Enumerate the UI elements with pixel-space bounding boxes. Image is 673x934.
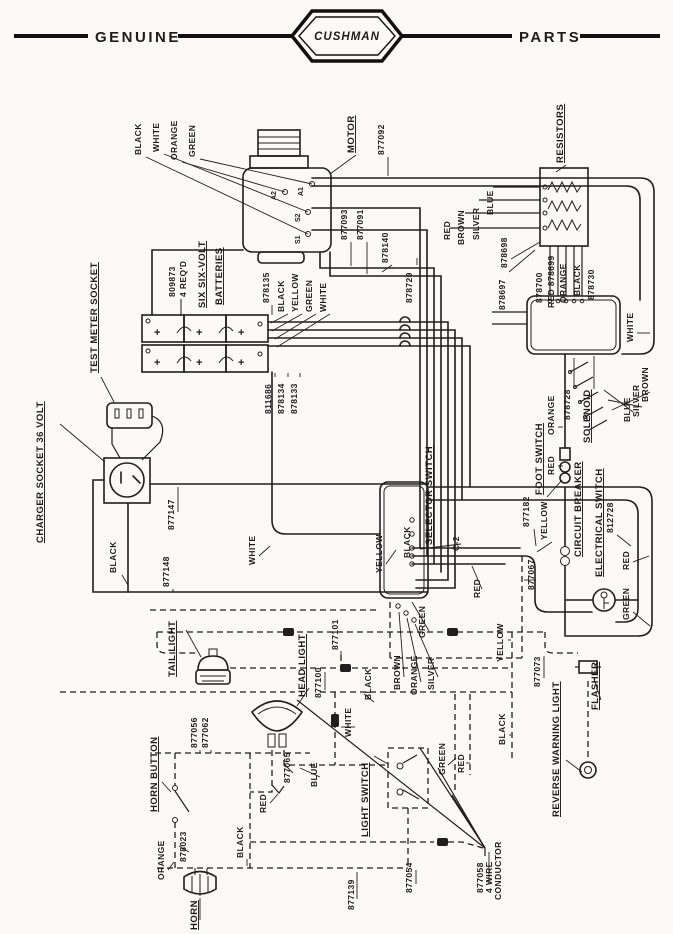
wire-segment: [112, 428, 120, 458]
wire-segment: [173, 786, 178, 791]
header-band: GENUINE PARTS CUSHMAN: [14, 11, 660, 61]
wire-segment: [561, 547, 570, 556]
label-selector-yellow: YELLOW: [374, 534, 384, 573]
wire-segment: [258, 322, 262, 326]
title-foot-switch: FOOT SWITCH: [534, 423, 545, 495]
title-selector-switch: SELECTOR SWITCH: [424, 446, 435, 545]
label-selector-orange: ORANGE: [409, 655, 419, 695]
label-conductor-2: CONDUCTOR: [493, 841, 503, 900]
label-part-877148: 877148: [161, 556, 171, 587]
label-part-811686: 811686: [263, 384, 273, 414]
label-part-877139: 877139: [346, 879, 356, 910]
head-light: [252, 701, 302, 747]
wire-segment: [312, 178, 654, 354]
battery-plus: +: [196, 357, 202, 369]
wire-segment: [198, 656, 228, 670]
wire-segment: [560, 462, 570, 472]
wire-segment: [545, 632, 578, 653]
title-charger-socket: CHARGER SOCKET 36 VOLT: [35, 401, 46, 543]
wire-segment: [297, 700, 485, 848]
wire-segment: [209, 649, 217, 656]
horn-button-switch: [173, 786, 190, 823]
circuit-breaker-coil: [561, 547, 570, 566]
wire-segment: [226, 315, 268, 342]
battery-bank: [142, 299, 268, 372]
label-motor-white: WHITE: [151, 123, 161, 152]
resistor-zigzag: [548, 220, 581, 230]
label-horn-orange: ORANGE: [156, 840, 166, 880]
label-lswitch-red: RED: [456, 754, 466, 773]
title-solenoid: SOLENOID: [582, 389, 593, 443]
label-part-878698: 878698: [499, 237, 509, 268]
wire-segment: [531, 300, 616, 350]
cushman-badge: CUSHMAN: [292, 11, 402, 61]
label-eswitch-green: GREEN: [621, 588, 631, 620]
wire-segment: [570, 362, 588, 372]
battery-plus: +: [196, 327, 202, 339]
diagram-canvas: GENUINE PARTS CUSHMAN: [0, 0, 673, 934]
wire-segment: [226, 345, 268, 372]
motor: [243, 130, 331, 263]
wire-segment: [617, 535, 631, 546]
wire-segment: [397, 789, 403, 795]
wire-segment: [560, 473, 570, 483]
label-terminal-s2: S2: [295, 213, 302, 222]
label-eswitch-red: RED: [621, 551, 631, 570]
charger-socket: [104, 458, 150, 503]
wire-segment: [601, 592, 607, 598]
wiring-diagram-page: GENUINE PARTS CUSHMAN: [0, 0, 673, 934]
wire-segment: [386, 550, 396, 564]
label-part-878730: 878730: [586, 269, 596, 300]
wire-segment: [196, 670, 230, 684]
label-part-812728: 812728: [605, 502, 615, 533]
header-parts: PARTS: [519, 29, 581, 46]
wire-segment: [146, 349, 150, 353]
wire-segment: [60, 424, 105, 462]
title-horn: HORN: [189, 900, 200, 930]
wire-segment: [540, 168, 588, 246]
label-battery-white: WHITE: [318, 283, 328, 312]
wire-segment: [331, 714, 339, 727]
wire-segment: [560, 448, 570, 460]
label-part-877062: 877062: [200, 717, 210, 748]
label-selector-silver: SILVER: [426, 658, 436, 690]
wire-segment: [284, 750, 388, 765]
wire-segment: [110, 463, 144, 497]
wire-segment: [547, 480, 562, 497]
wire-segment: [412, 618, 416, 622]
label-part-878023: 878023: [178, 831, 188, 862]
wire-segment: [258, 252, 304, 263]
label-lswitch-green: GREEN: [437, 743, 447, 775]
wire-segment: [534, 529, 536, 546]
wire-segment: [543, 198, 547, 202]
label-selector-red: RED: [472, 579, 482, 598]
wire-segment: [452, 795, 485, 848]
wire-segment: [447, 628, 458, 636]
label-part-878728: 878728: [562, 389, 572, 420]
wire-segment: [122, 575, 128, 585]
wire-segment: [250, 750, 272, 792]
label-selector-black: BLACK: [402, 526, 412, 558]
foot-switch: [560, 448, 570, 483]
label-part-878729: 878729: [404, 272, 414, 303]
wire-segment: [437, 838, 448, 846]
label-part-877065: 877065: [282, 752, 292, 783]
label-selector-green: GREEN: [417, 606, 427, 638]
tail-light: [196, 649, 230, 684]
wire-segment: [268, 734, 275, 747]
wire-segment: [580, 762, 596, 778]
wire-segment: [250, 156, 308, 168]
label-battery-qty: 4 REQ'D: [178, 261, 188, 297]
label-part-877092: 877092: [376, 124, 386, 155]
wire-segment: [312, 208, 420, 548]
wire-segment: [259, 546, 270, 556]
reverse-warning-lamp: [580, 762, 596, 778]
title-reverse-warning-light: REVERSE WARNING LIGHT: [551, 681, 562, 817]
wire-segment: [340, 664, 351, 672]
solenoid: [527, 296, 620, 430]
title-head-light: HEAD LIGHT: [297, 634, 308, 697]
label-foot-yellow: YELLOW: [539, 501, 549, 540]
wire-segment: [448, 758, 456, 765]
wire-splice: [272, 785, 284, 793]
wire-segment: [162, 782, 171, 792]
wire-segment: [101, 377, 114, 402]
label-harness-yellow: YELLOW: [495, 623, 505, 662]
wire-segment: [107, 403, 152, 428]
label-terminal-c2: C-2: [451, 536, 461, 551]
label-part-878135: 878135: [261, 272, 271, 303]
label-headlight-blue: BLUE: [309, 762, 319, 787]
wire-segment: [258, 707, 296, 714]
label-part-877182: 877182: [521, 496, 531, 527]
label-part-877073: 877073: [532, 656, 542, 687]
title-circuit-breaker: CIRCUIT BREAKER: [573, 461, 584, 557]
label-battery-yellow: YELLOW: [290, 273, 300, 312]
wire-segment: [133, 476, 140, 483]
label-part-878140: 878140: [380, 232, 390, 263]
label-part-878697: 878697: [497, 279, 507, 310]
wire-segment: [509, 250, 535, 272]
label-part-877067: 877067: [526, 559, 536, 590]
wire-segment: [279, 734, 286, 747]
wire-segment: [320, 252, 434, 564]
wire-segment: [184, 345, 226, 372]
wire-segment: [410, 518, 414, 522]
battery-plus: +: [238, 357, 244, 369]
label-resistor-black: BLACK: [572, 264, 582, 296]
title-motor: MOTOR: [346, 115, 357, 153]
wire-segment: [258, 352, 262, 356]
label-resistor-red: RED: [442, 221, 452, 240]
label-charger-black: BLACK: [108, 541, 118, 573]
resistor-zigzag: [548, 182, 581, 192]
title-flasher: FLASHER: [590, 662, 601, 710]
title-test-meter-socket: TEST METER SOCKET: [89, 262, 100, 373]
label-foot-red: RED: [546, 456, 556, 475]
label-part-877147: 877147: [166, 499, 176, 530]
label-harness-black: BLACK: [497, 713, 507, 745]
wire-segment: [543, 211, 547, 215]
label-selector-brown: BROWN: [392, 655, 402, 690]
wire-segment: [252, 701, 302, 731]
label-headlight-white: WHITE: [343, 708, 353, 737]
wire-segment: [330, 155, 356, 174]
label-part-877091: 877091: [355, 209, 365, 240]
wire-segment: [168, 862, 174, 870]
label-resistor-brown: BROWN: [456, 210, 466, 245]
wire-segment: [268, 346, 470, 487]
wire-segment: [585, 767, 592, 774]
wire-segment: [397, 763, 403, 769]
wire-segment: [200, 159, 312, 184]
label-harness-white: WHITE: [247, 536, 257, 565]
label-terminal-a2: A2: [271, 191, 278, 200]
label-motor-orange: ORANGE: [169, 120, 179, 160]
battery-plus: +: [154, 327, 160, 339]
motor-body: [243, 168, 331, 252]
label-motor-green: GREEN: [187, 125, 197, 157]
label-solenoid-brown: BROWN: [640, 367, 650, 402]
title-electrical-switch: ELECTRICAL SWITCH: [594, 468, 605, 577]
title-resistors: RESISTORS: [555, 104, 566, 163]
label-part-878134: 878134: [276, 383, 286, 414]
label-headlight-black: BLACK: [363, 668, 373, 700]
wire-segment: [543, 226, 547, 230]
title-light-switch: LIGHT SWITCH: [360, 762, 371, 837]
wire-segment: [404, 611, 408, 615]
label-part-877101: 877101: [330, 619, 340, 650]
wire-segment: [175, 791, 189, 812]
label-terminal-a1: A1: [298, 187, 305, 196]
wire-segment: [561, 557, 570, 566]
label-resistor-blue: BLUE: [485, 190, 495, 215]
wire-segment: [537, 542, 552, 552]
wire-segment: [270, 794, 278, 803]
wire-segment: [272, 785, 284, 793]
label-motor-black: BLACK: [133, 123, 143, 155]
wire-segment: [566, 760, 582, 772]
label-part-878699: RED 878699: [546, 255, 556, 308]
wire-segment: [575, 377, 593, 387]
wire-segment: [139, 409, 143, 418]
battery-plus: +: [238, 327, 244, 339]
label-horn-black: BLACK: [235, 826, 245, 858]
label-part-877054: 877054: [404, 862, 414, 893]
label-part-877100: 877100: [313, 667, 323, 698]
label-part-878133: 878133: [289, 383, 299, 414]
wire-segment: [173, 818, 178, 823]
resistor-zigzag: [548, 201, 581, 211]
wire-segment: [127, 409, 131, 418]
wire-segment: [268, 322, 448, 580]
wire-segment: [146, 319, 150, 323]
title-horn-button: HORN BUTTON: [149, 736, 160, 812]
label-part-878700: 878700: [534, 272, 544, 303]
wire-segment: [527, 296, 620, 354]
label-solenoid-white: WHITE: [625, 313, 635, 342]
wire-segment: [633, 612, 650, 626]
horn: [184, 868, 216, 896]
title-tail-light: TAIL LIGHT: [167, 621, 178, 677]
test-meter-socket: [107, 403, 152, 428]
light-switch: [397, 755, 419, 799]
label-horn-red: RED: [258, 794, 268, 813]
label-battery-black: BLACK: [276, 280, 286, 312]
label-part-877093: 877093: [339, 209, 349, 240]
wire-segment: [184, 315, 226, 342]
label-terminal-s1: S1: [295, 235, 302, 244]
battery-plus: +: [154, 357, 160, 369]
label-part-877056: 877056: [189, 717, 199, 748]
wiring-dashed: [60, 556, 588, 868]
resistor-bank: [540, 168, 588, 246]
key-switch: [593, 589, 615, 611]
wire-segment: [283, 628, 294, 636]
wire-segment: [633, 556, 649, 562]
wire-segment: [403, 755, 417, 763]
wire-segment: [396, 604, 400, 608]
label-resistor-orange: ORANGE: [558, 263, 568, 303]
wire-segment: [115, 409, 119, 418]
wire-segment: [511, 242, 540, 259]
label-resistor-silver: SILVER: [471, 208, 481, 240]
label-battery-green: GREEN: [304, 280, 314, 312]
header-genuine: GENUINE: [95, 29, 181, 46]
title-batteries-1: SIX SIX-VOLT: [197, 241, 208, 308]
badge-brand-text: CUSHMAN: [314, 31, 380, 43]
title-batteries-2: BATTERIES: [214, 247, 225, 305]
label-foot-orange: ORANGE: [546, 395, 556, 435]
label-battery-part: 809873: [167, 266, 177, 297]
